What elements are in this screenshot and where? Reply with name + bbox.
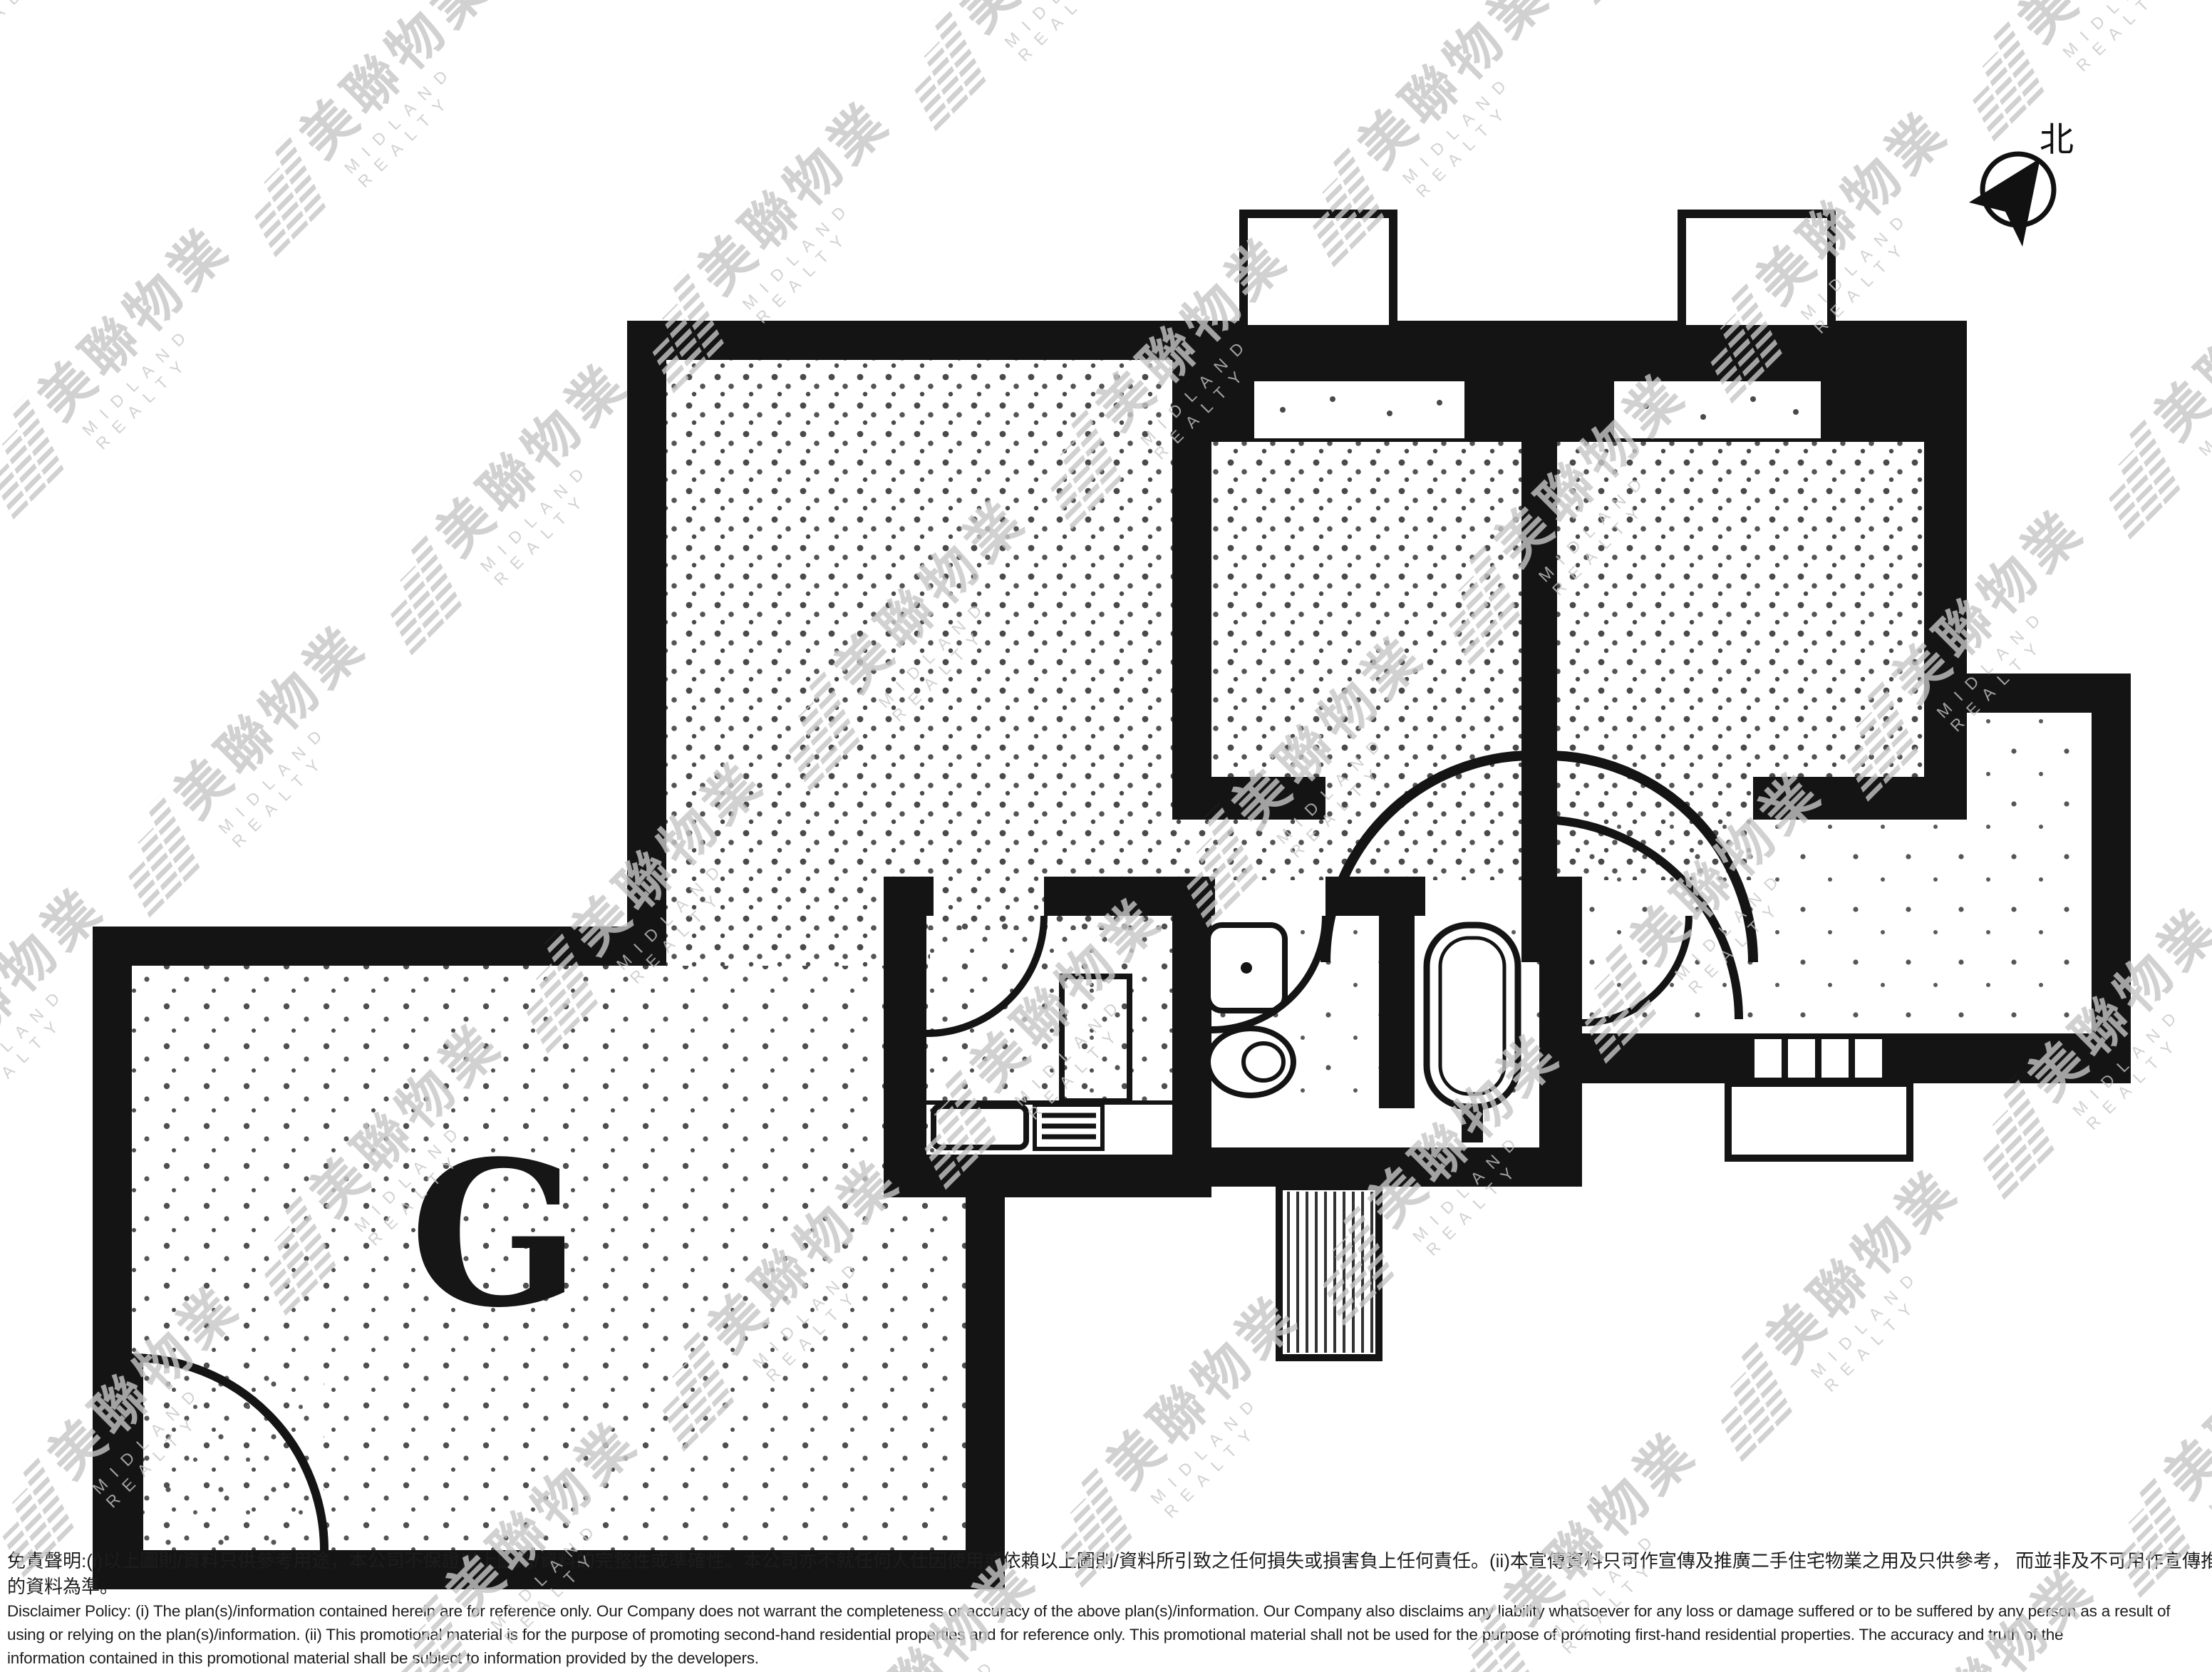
north-compass: 北 [1969,121,2074,247]
disclaimer-line: using or relying on the plan(s)/informat… [7,1623,2212,1646]
basin-drain [1241,962,1252,974]
ac-platform-1 [1244,214,1393,329]
kitchen-counter [1062,976,1130,1101]
room-kitchen [926,916,1172,1101]
ac-platform-2 [1682,214,1831,329]
room-living-dining [666,360,1172,930]
ac-platform-right [1728,1083,1910,1158]
floor-plan-image: G 北 免責聲明:(i)以上圖則/資料只供參考用途，本公司不保證以上圖則/資料的… [0,0,2212,1672]
room-bedroom-1 [1211,442,1521,777]
unit-label: G [410,1118,580,1352]
bathroom-threshold [1211,1110,1539,1147]
disclaimer-line: information contained in this promotiona… [7,1646,2212,1670]
disclaimer-line: Disclaimer Policy: (i) The plan(s)/infor… [7,1599,2212,1623]
kitchen-sink [934,1106,1026,1147]
disclaimer: 免責聲明:(i)以上圖則/資料只供參考用途，本公司不保證以上圖則/資料的完整性或… [7,1548,2212,1670]
entrance-door-leaf [132,1354,143,1550]
compass-needle-icon [1969,158,2040,247]
bedroom-2-window [1614,381,1821,438]
toilet [1208,1028,1293,1095]
disclaimer-line: 的資料為準。 [7,1574,2212,1599]
north-label: 北 [2040,121,2074,159]
bedroom-1-window [1254,381,1464,438]
room-bedroom-2 [1557,442,1924,777]
disclaimer-line: 免責聲明:(i)以上圖則/資料只供參考用途，本公司不保證以上圖則/資料的完整性或… [7,1548,2212,1574]
bathtub-drain-stem [1462,1107,1483,1142]
floor-plan: G 北 [0,0,2212,1672]
corridor [1172,820,1753,880]
